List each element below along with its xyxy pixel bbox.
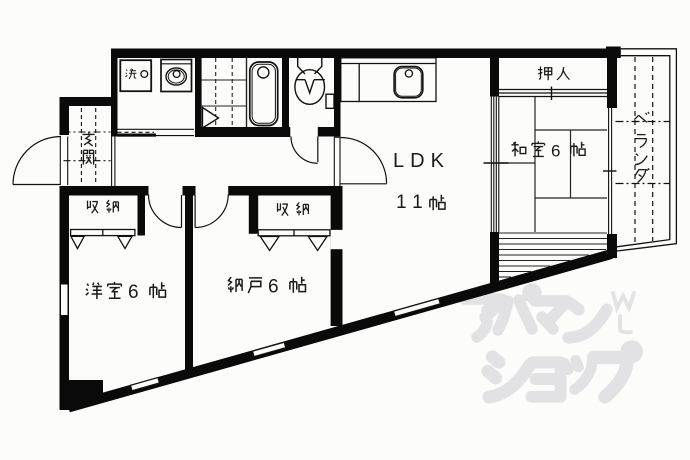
svg-text:6: 6	[128, 282, 139, 303]
svg-text:11: 11	[396, 192, 430, 213]
svg-text:6: 6	[268, 277, 279, 298]
svg-text:6: 6	[551, 142, 560, 161]
svg-text:LDK: LDK	[393, 150, 450, 172]
